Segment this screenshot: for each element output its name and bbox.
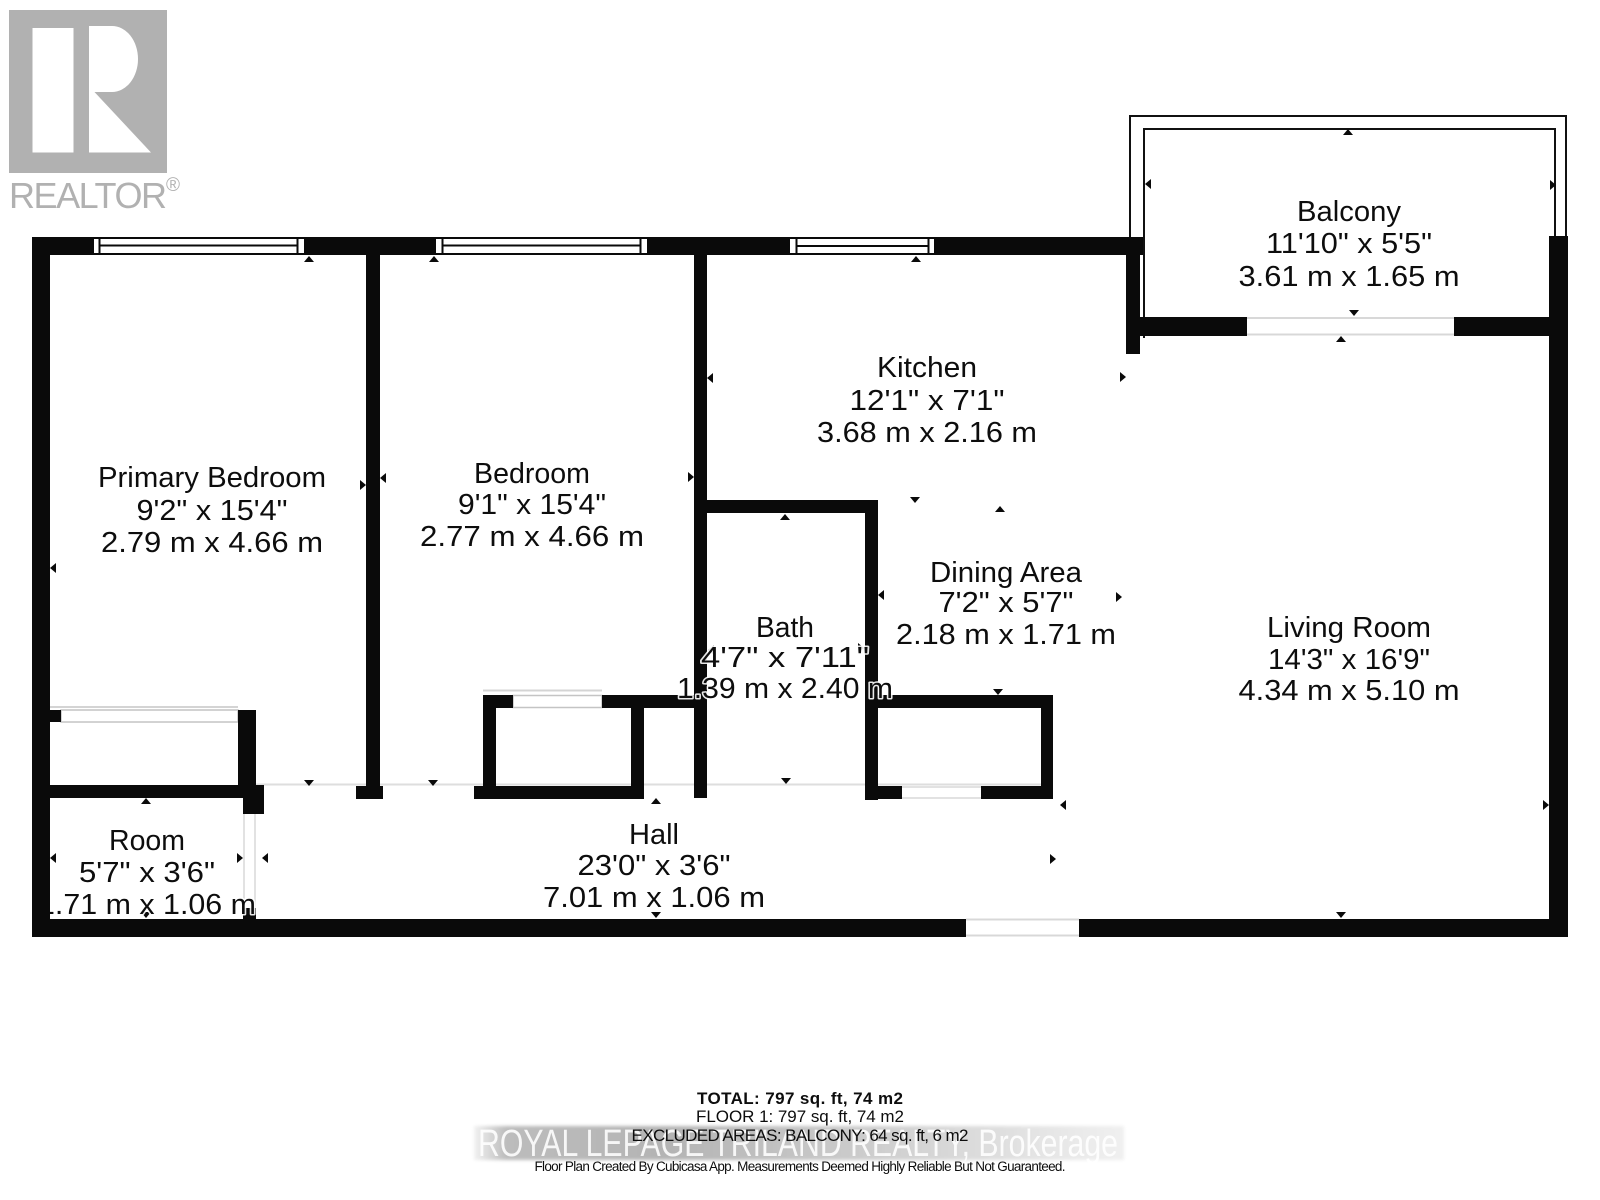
svg-text:Room: Room [109,825,185,857]
svg-text:3.68 m x 2.16 m: 3.68 m x 2.16 m [817,417,1037,449]
svg-text:Bedroom: Bedroom [474,458,590,490]
svg-text:5'7" x 3'6": 5'7" x 3'6" [79,857,215,889]
svg-text:7'2" x 5'7": 7'2" x 5'7" [939,587,1074,619]
svg-text:11'10" x 5'5": 11'10" x 5'5" [1266,228,1432,260]
svg-text:Living Room: Living Room [1267,612,1431,644]
svg-text:12'1" x 7'1": 12'1" x 7'1" [850,385,1005,417]
svg-text:Dining Area: Dining Area [930,557,1083,589]
svg-text:Floor Plan Created By Cubicasa: Floor Plan Created By Cubicasa App. Meas… [535,1159,1066,1174]
svg-text:®: ® [166,175,180,196]
svg-text:9'2" x 15'4": 9'2" x 15'4" [137,495,288,527]
svg-text:Primary Bedroom: Primary Bedroom [98,462,326,494]
svg-text:Balcony: Balcony [1297,196,1402,228]
svg-text:1.71 m x 1.06 m: 1.71 m x 1.06 m [38,889,256,921]
svg-text:2.18 m x 1.71 m: 2.18 m x 1.71 m [896,619,1116,651]
svg-text:Kitchen: Kitchen [877,352,977,384]
svg-text:Bath: Bath [756,612,814,644]
svg-text:4'7" x 7'11": 4'7" x 7'11" [701,642,869,674]
svg-text:TOTAL: 797 sq. ft, 74 m2: TOTAL: 797 sq. ft, 74 m2 [697,1089,903,1108]
svg-text:REALTOR: REALTOR [9,175,167,216]
svg-text:23'0" x 3'6": 23'0" x 3'6" [578,850,731,882]
svg-text:7.01 m x 1.06 m: 7.01 m x 1.06 m [543,882,765,914]
svg-text:2.79 m x 4.66 m: 2.79 m x 4.66 m [101,527,323,559]
svg-text:9'1" x 15'4": 9'1" x 15'4" [458,489,606,521]
svg-text:14'3" x 16'9": 14'3" x 16'9" [1268,644,1430,676]
svg-text:3.61 m x 1.65 m: 3.61 m x 1.65 m [1239,261,1460,293]
svg-text:FLOOR 1: 797 sq. ft, 74 m2: FLOOR 1: 797 sq. ft, 74 m2 [696,1107,904,1126]
svg-text:EXCLUDED AREAS: BALCONY: 64 sq: EXCLUDED AREAS: BALCONY: 64 sq. ft, 6 m2 [632,1126,969,1145]
svg-text:1.39 m x 2.40 m: 1.39 m x 2.40 m [677,673,893,705]
svg-text:2.77 m x 4.66 m: 2.77 m x 4.66 m [420,521,644,553]
svg-text:Hall: Hall [629,819,679,851]
svg-text:4.34 m x 5.10 m: 4.34 m x 5.10 m [1239,675,1460,707]
